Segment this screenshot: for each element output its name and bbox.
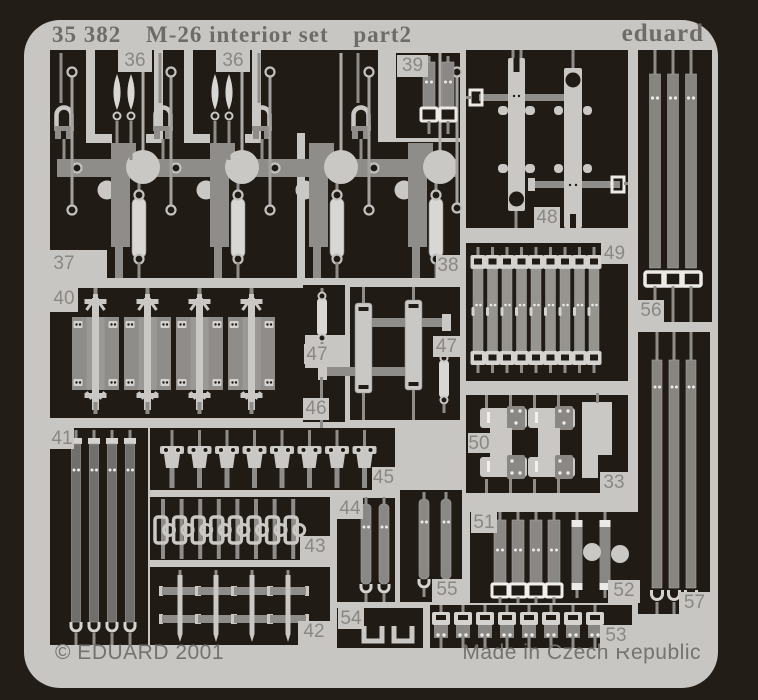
section-label-50: 50 xyxy=(468,433,490,453)
part-number: part2 xyxy=(353,22,412,47)
section-57-parts xyxy=(652,332,697,614)
brand-logo: eduard xyxy=(622,20,704,48)
section-label-37: 37 xyxy=(50,253,78,278)
section-label-38: 38 xyxy=(436,255,460,278)
section-label-56: 56 xyxy=(638,300,664,322)
section-label-33: 33 xyxy=(600,472,628,493)
photo-etch-sheet-photo: 35 382 M-26 interior set part2 eduard © … xyxy=(0,0,758,700)
section-label-52: 52 xyxy=(608,580,640,603)
set-title: M-26 interior set xyxy=(146,22,329,47)
copyright-text: © EDUARD 2001 xyxy=(55,641,224,665)
sheet-title: 35 382 M-26 interior set part2 xyxy=(52,22,412,48)
section-label-45: 45 xyxy=(372,467,395,490)
section-label-53: 53 xyxy=(600,625,632,648)
section-label-44: 44 xyxy=(337,498,363,519)
section-label-55: 55 xyxy=(432,579,462,602)
section-label-40: 40 xyxy=(50,288,78,312)
etched-parts-graphic xyxy=(0,0,758,700)
section-label-47a: 47 xyxy=(304,344,330,364)
section-label-57: 57 xyxy=(679,592,710,614)
section-label-51: 51 xyxy=(471,512,497,533)
section-label-54: 54 xyxy=(338,608,364,629)
section-label-43: 43 xyxy=(300,536,330,560)
section-label-42: 42 xyxy=(298,621,330,645)
section-label-49: 49 xyxy=(601,243,628,264)
section-label-47b: 47 xyxy=(433,336,460,357)
section-label-36b: 36 xyxy=(216,50,250,72)
section-49-parts xyxy=(471,247,602,373)
section-label-36a: 36 xyxy=(118,50,152,72)
section-label-48: 48 xyxy=(534,207,560,228)
section-label-39: 39 xyxy=(397,55,428,77)
catalog-number: 35 382 xyxy=(52,22,121,47)
section-label-41: 41 xyxy=(50,428,74,449)
section-label-46: 46 xyxy=(303,398,329,420)
made-in-text: Made in Czech Republic xyxy=(462,641,701,665)
